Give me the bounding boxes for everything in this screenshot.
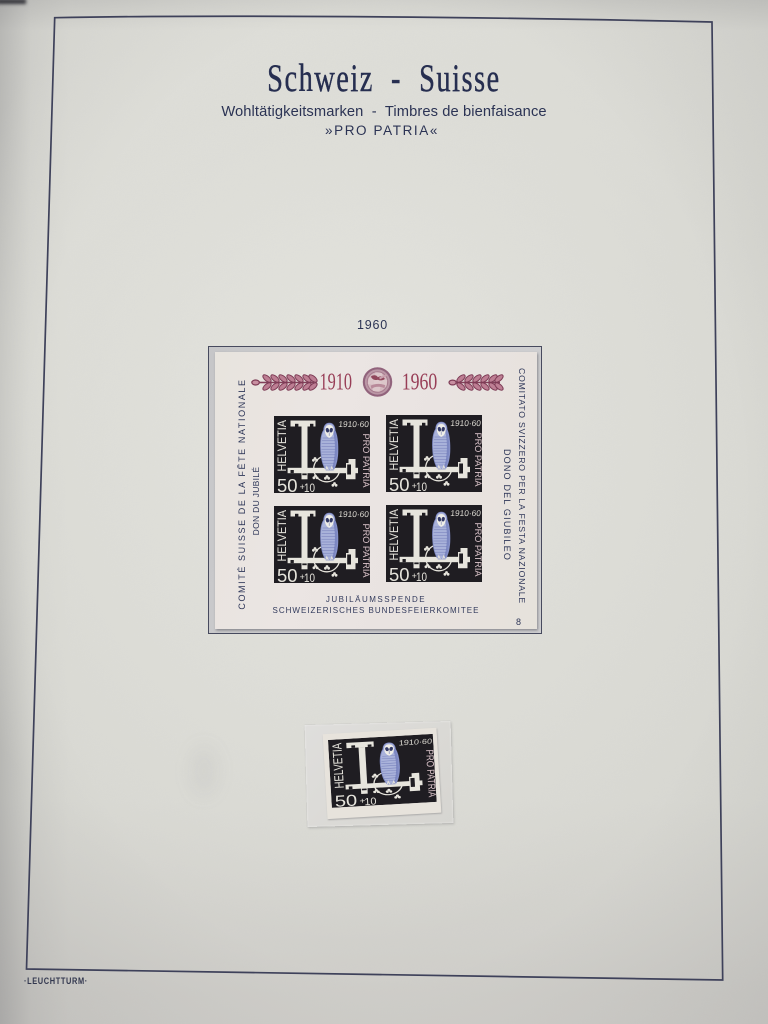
svg-text:1910: 1910 — [320, 370, 353, 396]
svg-text:1960: 1960 — [402, 370, 438, 396]
